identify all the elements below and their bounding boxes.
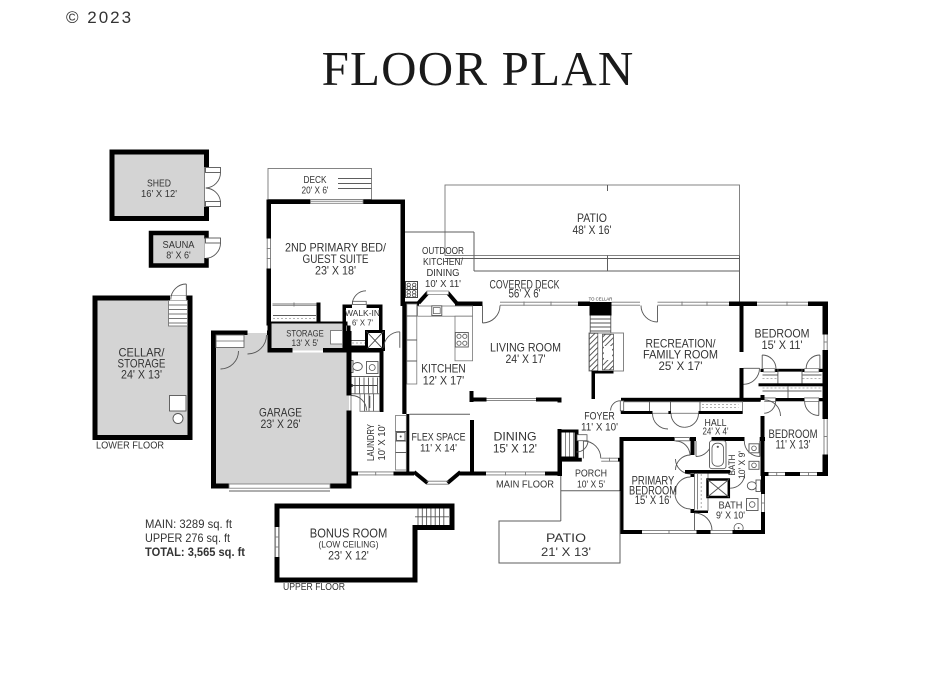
svg-text:48' X 16': 48' X 16' xyxy=(573,225,612,237)
svg-text:PATIO: PATIO xyxy=(577,213,607,225)
svg-text:10' X 11': 10' X 11' xyxy=(425,278,461,290)
svg-text:20' X 6': 20' X 6' xyxy=(302,186,329,197)
svg-text:15' X 12': 15' X 12' xyxy=(493,442,537,456)
svg-text:DECK: DECK xyxy=(304,175,327,186)
svg-text:24' X 13': 24' X 13' xyxy=(121,368,162,382)
svg-text:9' X 10': 9' X 10' xyxy=(716,510,745,522)
svg-text:11' X 10': 11' X 10' xyxy=(581,422,618,434)
svg-text:TO CELLAR: TO CELLAR xyxy=(589,297,613,302)
svg-text:STORAGE: STORAGE xyxy=(286,329,324,339)
svg-text:PATIO: PATIO xyxy=(546,531,586,545)
svg-text:BONUS ROOM: BONUS ROOM xyxy=(310,526,388,541)
svg-text:21' X 13': 21' X 13' xyxy=(541,545,591,559)
svg-text:WALK-IN: WALK-IN xyxy=(345,308,380,318)
svg-text:16' X 12': 16' X 12' xyxy=(141,188,177,200)
svg-text:MAIN FLOOR: MAIN FLOOR xyxy=(496,480,554,491)
svg-text:25' X 17': 25' X 17' xyxy=(659,359,703,373)
svg-text:FLOOR PLAN: FLOOR PLAN xyxy=(322,41,635,96)
svg-text:6' X 7': 6' X 7' xyxy=(352,318,373,328)
svg-text:8' X 6': 8' X 6' xyxy=(166,251,191,262)
svg-text:10' X 9': 10' X 9' xyxy=(737,451,748,479)
svg-text:UPPER 276 sq. ft: UPPER 276 sq. ft xyxy=(145,531,231,545)
svg-text:56' X 6': 56' X 6' xyxy=(509,289,541,301)
svg-text:10' X 5': 10' X 5' xyxy=(577,479,605,491)
svg-text:15' X 11': 15' X 11' xyxy=(762,338,803,352)
svg-text:13' X 5': 13' X 5' xyxy=(292,338,319,348)
svg-text:23' X 12': 23' X 12' xyxy=(328,549,369,563)
svg-text:12' X 17': 12' X 17' xyxy=(423,374,465,388)
svg-text:24' X 17': 24' X 17' xyxy=(506,352,546,366)
svg-text:LOWER FLOOR: LOWER FLOOR xyxy=(96,441,164,452)
svg-text:MAIN: 3289 sq. ft: MAIN: 3289 sq. ft xyxy=(145,517,233,531)
svg-text:11' X 14': 11' X 14' xyxy=(420,443,457,455)
svg-text:© 2023: © 2023 xyxy=(66,8,133,27)
svg-text:15' X 16': 15' X 16' xyxy=(635,495,672,507)
svg-text:SAUNA: SAUNA xyxy=(163,240,195,251)
svg-text:10' X 10': 10' X 10' xyxy=(376,425,388,461)
svg-text:24' X 4': 24' X 4' xyxy=(703,426,729,438)
svg-text:UPPER FLOOR: UPPER FLOOR xyxy=(283,582,345,593)
svg-text:11' X 13': 11' X 13' xyxy=(776,438,811,452)
svg-text:23' X 18': 23' X 18' xyxy=(315,264,356,278)
svg-text:23' X 26': 23' X 26' xyxy=(261,417,301,431)
svg-text:TOTAL: 3,565 sq. ft: TOTAL: 3,565 sq. ft xyxy=(145,545,245,559)
